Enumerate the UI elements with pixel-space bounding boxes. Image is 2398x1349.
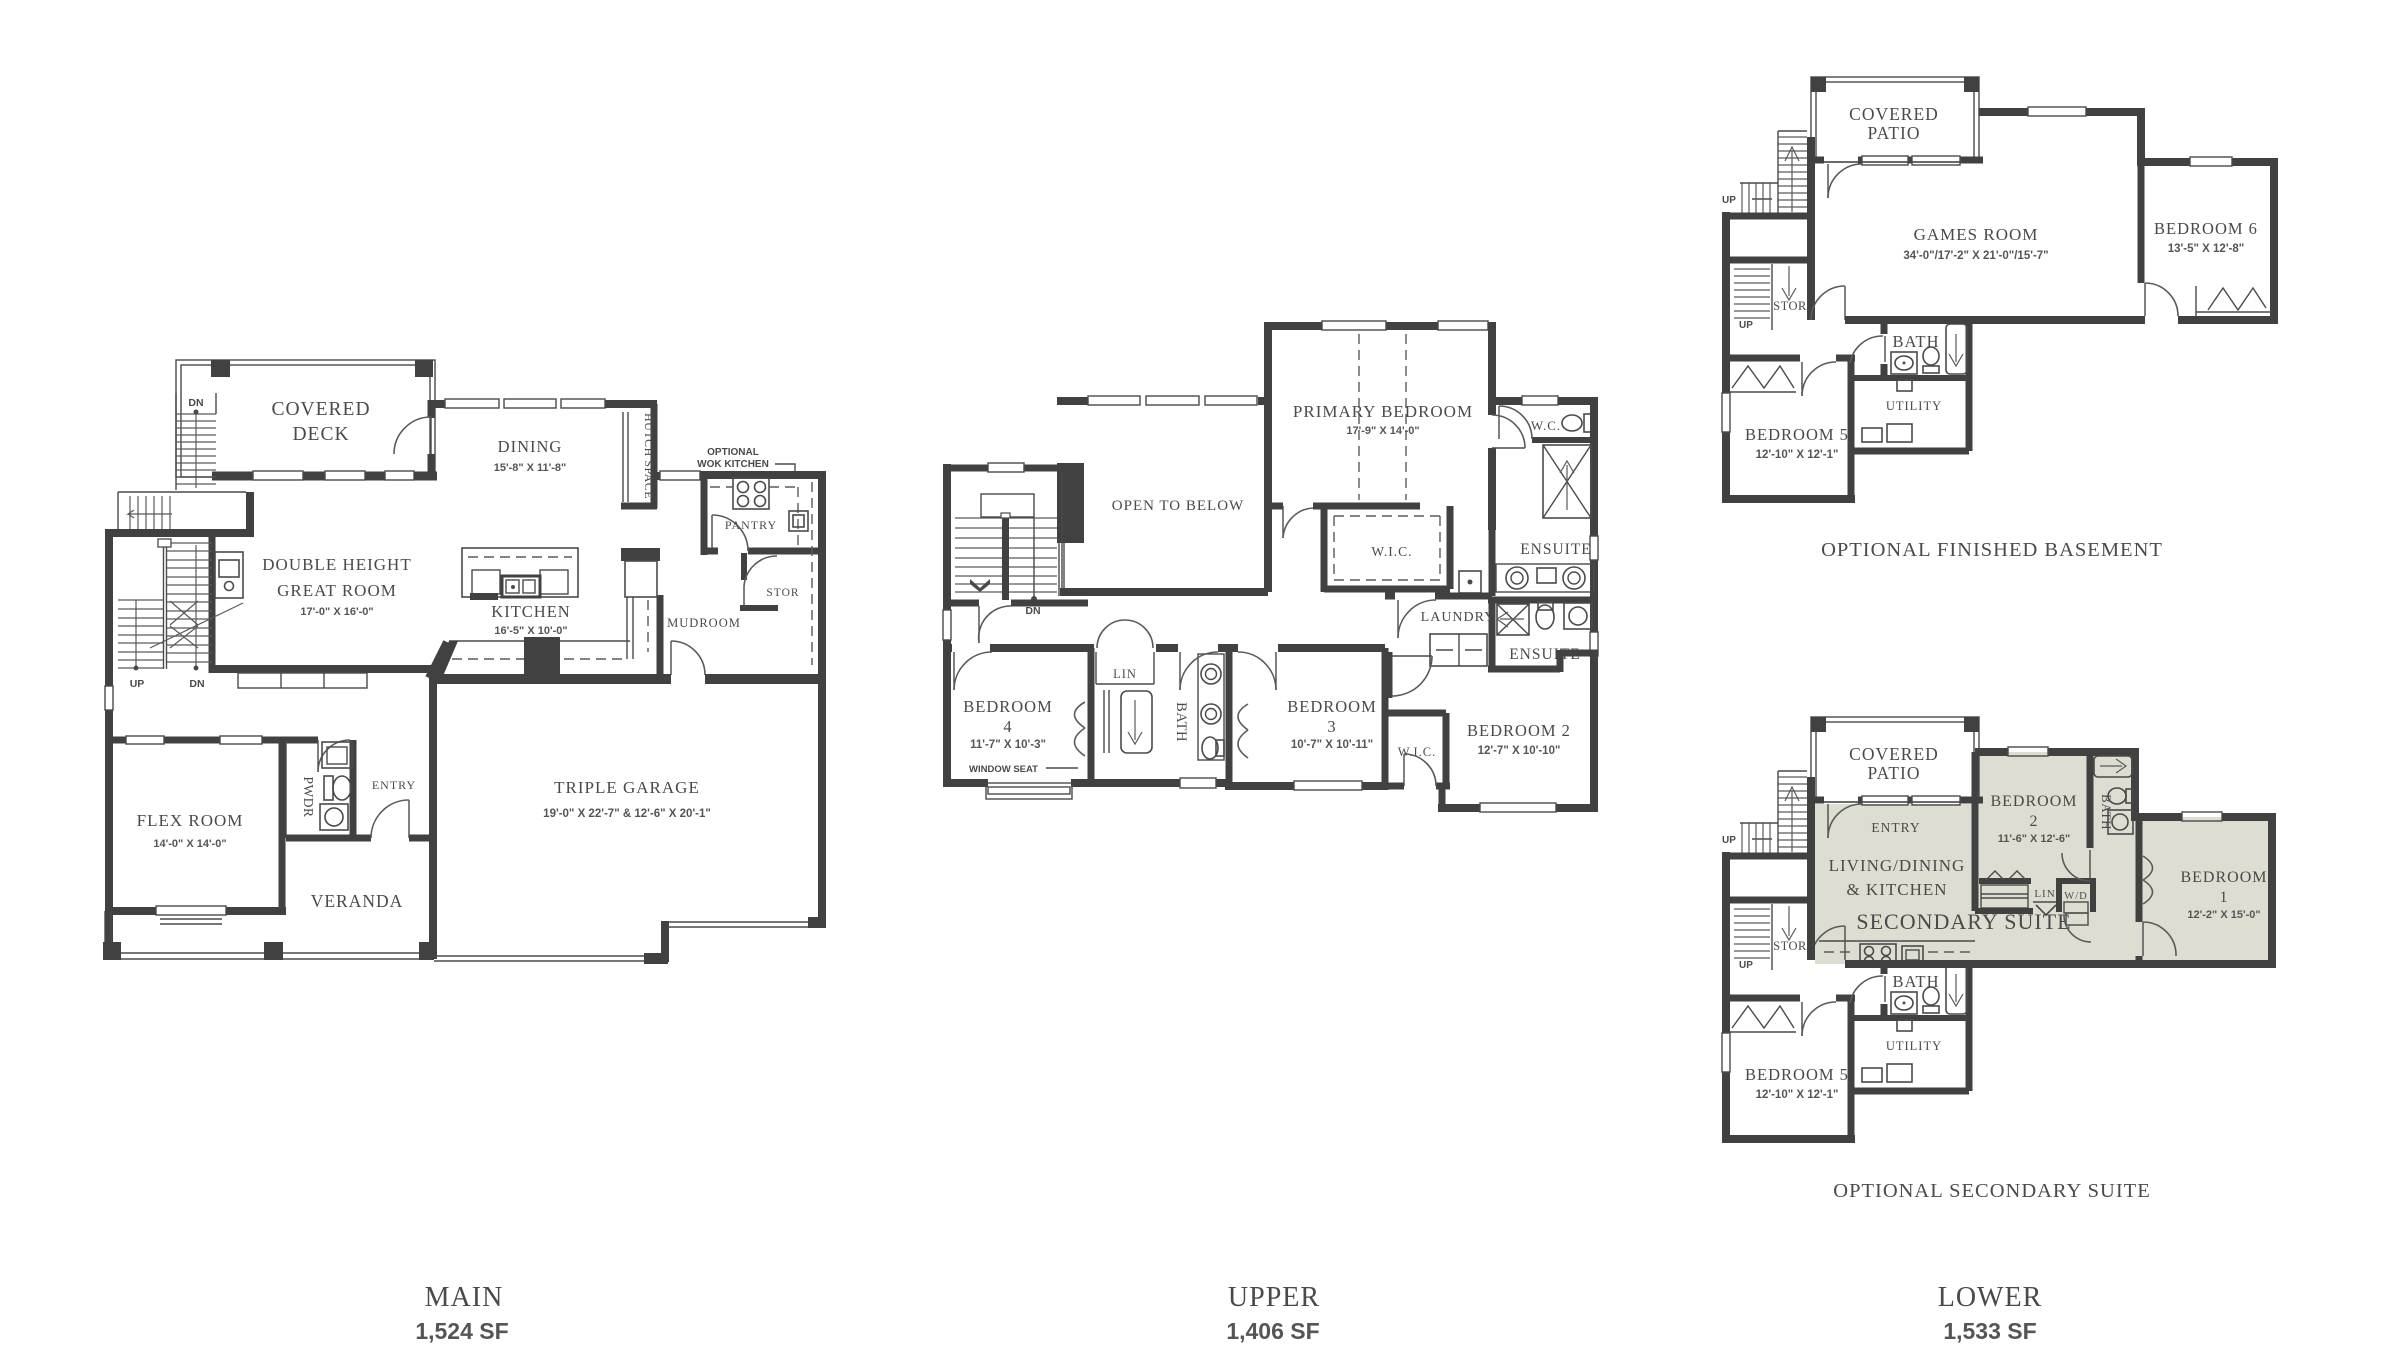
svg-text:BEDROOM 5: BEDROOM 5 [1745,425,1849,444]
svg-text:BEDROOM 6: BEDROOM 6 [2154,219,2258,238]
svg-text:MAIN: MAIN [425,1282,504,1313]
svg-text:VERANDA: VERANDA [311,891,404,911]
svg-text:PRIMARY BEDROOM: PRIMARY BEDROOM [1293,402,1473,421]
svg-text:11'-7" X 10'-3": 11'-7" X 10'-3" [970,739,1046,751]
svg-text:34'-0"/17'-2" X 21'-0"/15'-7": 34'-0"/17'-2" X 21'-0"/15'-7" [1903,250,2048,262]
svg-text:COVERED: COVERED [271,399,370,420]
svg-text:11'-6" X 12'-6": 11'-6" X 12'-6" [1998,833,2071,845]
svg-text:KITCHEN: KITCHEN [491,602,570,621]
svg-text:BEDROOM: BEDROOM [1287,697,1377,716]
svg-text:STOR: STOR [1773,299,1807,313]
svg-text:FLEX ROOM: FLEX ROOM [137,811,244,830]
svg-text:DN: DN [188,397,203,409]
svg-text:WOK KITCHEN: WOK KITCHEN [697,459,769,470]
svg-text:LIVING/DINING: LIVING/DINING [1829,856,1966,875]
svg-text:1,524 SF: 1,524 SF [415,1318,508,1344]
svg-text:HUTCH SPACE: HUTCH SPACE [642,413,656,499]
svg-text:1,533 SF: 1,533 SF [1943,1318,2036,1344]
svg-text:PATIO: PATIO [1868,123,1921,143]
svg-text:BATH: BATH [1892,332,1939,351]
svg-text:OPTIONAL FINISHED BASEMENT: OPTIONAL FINISHED BASEMENT [1821,539,2163,561]
svg-text:DN: DN [1025,605,1040,617]
svg-text:PANTRY: PANTRY [725,518,777,532]
svg-text:LAUNDRY: LAUNDRY [1421,610,1496,625]
svg-text:BEDROOM: BEDROOM [1990,793,2077,810]
svg-text:GAMES ROOM: GAMES ROOM [1914,225,2039,244]
svg-text:3: 3 [1327,717,1336,736]
svg-text:W.C.: W.C. [1531,418,1561,433]
svg-text:16'-5" X 10'-0": 16'-5" X 10'-0" [494,625,567,637]
svg-text:14'-0" X 14'-0": 14'-0" X 14'-0" [153,838,226,850]
svg-text:TRIPLE GARAGE: TRIPLE GARAGE [554,778,700,797]
svg-text:WINDOW SEAT: WINDOW SEAT [969,764,1038,775]
svg-text:OPTIONAL: OPTIONAL [707,447,759,458]
svg-text:DINING: DINING [498,437,563,456]
svg-text:PWDR: PWDR [301,776,316,817]
svg-text:W/D: W/D [2064,891,2087,902]
svg-text:& KITCHEN: & KITCHEN [1846,880,1947,899]
svg-text:17'-9" X 14'-0": 17'-9" X 14'-0" [1346,425,1419,437]
svg-text:UP: UP [1739,320,1753,331]
svg-text:W.I.C.: W.I.C. [1371,544,1412,559]
svg-text:BEDROOM 2: BEDROOM 2 [1467,721,1571,740]
svg-text:12'-10" X 12'-1": 12'-10" X 12'-1" [1756,449,1839,461]
svg-text:BEDROOM: BEDROOM [963,697,1053,716]
svg-text:LOWER: LOWER [1938,1282,2043,1313]
svg-text:UTILITY: UTILITY [1886,399,1942,413]
svg-text:ENSUITE: ENSUITE [1520,541,1592,558]
svg-text:UP: UP [130,678,145,690]
svg-text:13'-5" X 12'-8": 13'-5" X 12'-8" [2168,243,2244,255]
svg-text:1,406 SF: 1,406 SF [1226,1318,1319,1344]
svg-text:17'-0" X 16'-0": 17'-0" X 16'-0" [300,606,373,618]
svg-text:ENTRY: ENTRY [1871,820,1920,835]
svg-text:UPPER: UPPER [1228,1282,1320,1313]
svg-text:GREAT ROOM: GREAT ROOM [277,581,397,600]
svg-text:10'-7" X 10'-11": 10'-7" X 10'-11" [1291,739,1373,751]
svg-text:4: 4 [1003,717,1012,736]
svg-text:LIN: LIN [2034,888,2055,900]
svg-text:15'-8" X 11'-8": 15'-8" X 11'-8" [494,462,567,474]
svg-text:DECK: DECK [292,424,349,445]
svg-text:ENTRY: ENTRY [372,778,416,792]
svg-text:OPEN TO BELOW: OPEN TO BELOW [1112,498,1244,514]
svg-text:1: 1 [2220,889,2229,906]
svg-text:SECONDARY SUITE: SECONDARY SUITE [1856,909,2071,934]
svg-text:12'-7" X 10'-10": 12'-7" X 10'-10" [1478,745,1561,757]
svg-text:UP: UP [1722,195,1736,206]
svg-text:W.I.C.: W.I.C. [1398,745,1437,759]
svg-text:BEDROOM: BEDROOM [2180,869,2267,886]
svg-text:BATH: BATH [1173,702,1189,742]
svg-text:12'-2" X 15'-0": 12'-2" X 15'-0" [2187,909,2260,921]
svg-text:OPTIONAL SECONDARY SUITE: OPTIONAL SECONDARY SUITE [1833,1180,2150,1202]
svg-text:DOUBLE HEIGHT: DOUBLE HEIGHT [262,555,411,574]
svg-text:19'-0" X 22'-7" & 12'-6" X 20': 19'-0" X 22'-7" & 12'-6" X 20'-1" [543,808,711,820]
svg-text:COVERED: COVERED [1849,104,1939,124]
svg-text:2: 2 [2030,813,2039,830]
svg-text:STOR: STOR [766,587,799,599]
svg-text:LIN: LIN [1113,667,1137,681]
svg-text:MUDROOM: MUDROOM [667,616,741,630]
svg-text:DN: DN [189,678,204,690]
